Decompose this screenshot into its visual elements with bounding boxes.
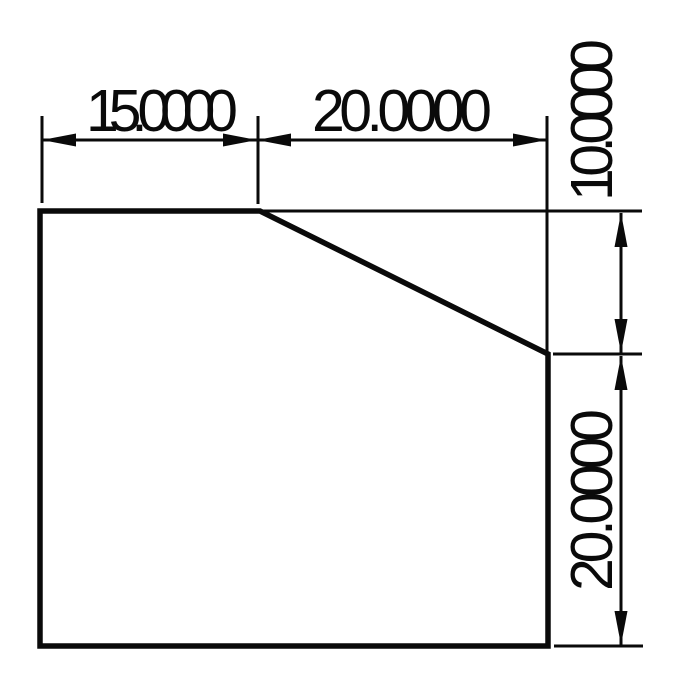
arrowhead-lower-up-icon: [615, 356, 628, 390]
arrowhead-mid-right-icon: [257, 134, 291, 147]
dim-label-top-right: 20.0000: [312, 78, 492, 144]
cad-drawing: 15.0000 20.0000 10.0000 20.0000: [0, 0, 680, 688]
dim-label-right-lower: 20.0000: [559, 409, 625, 591]
part-outline: [40, 211, 548, 646]
dim-label-top-left: 15.0000: [86, 78, 238, 144]
arrowhead-left-icon: [42, 134, 76, 147]
arrowhead-right-icon: [513, 134, 547, 147]
cad-drawing-canvas: 15.0000 20.0000 10.0000 20.0000: [0, 0, 680, 688]
arrowhead-lower-down-icon: [615, 611, 628, 645]
arrowhead-upper-up-icon: [615, 213, 628, 247]
dim-label-right-upper: 10.0000: [559, 39, 625, 201]
arrowhead-upper-down-icon: [615, 319, 628, 353]
